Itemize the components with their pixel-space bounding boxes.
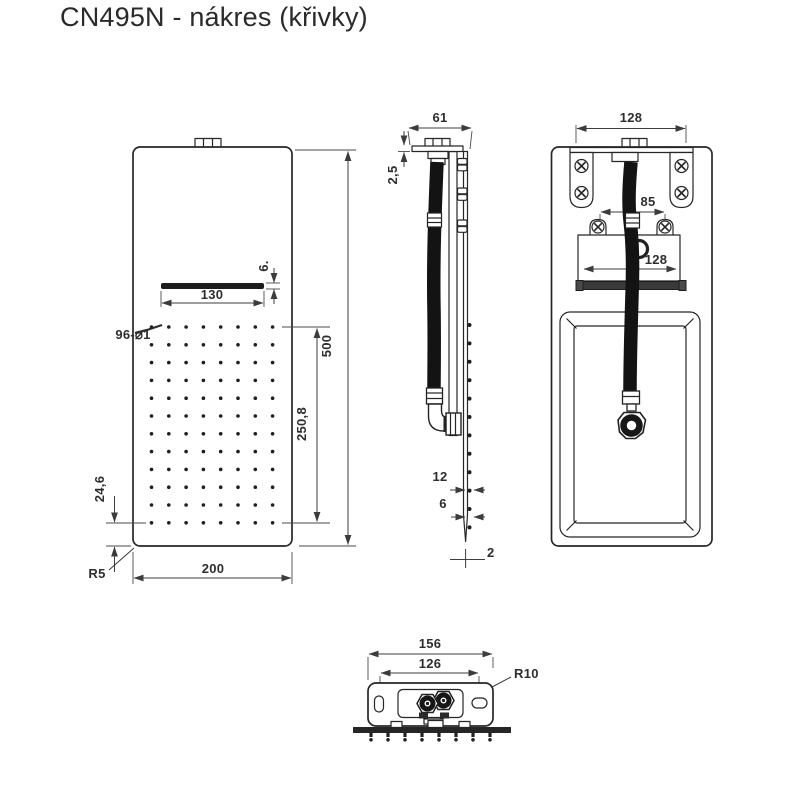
bottom-tab	[459, 722, 470, 728]
side-top-bolt	[425, 139, 450, 147]
side-screws	[458, 159, 468, 233]
bottom-view: 156 126 R10	[353, 636, 539, 742]
dim-side-width: 61	[432, 110, 447, 125]
bottom-tab	[428, 721, 443, 728]
dim-front-width: 200	[202, 561, 225, 576]
dim-front-height: 500	[319, 335, 334, 358]
side-top-plate	[412, 146, 463, 152]
dim-front-corner-radius: R5	[88, 566, 105, 581]
drawing-canvas: 6. 130 96-⌀1 24,6 R5 200	[0, 0, 800, 800]
dim-back-tab-span: 85	[640, 194, 655, 209]
bottom-tab	[391, 722, 402, 728]
dim-front-bottom-offset: 24,6	[92, 476, 107, 503]
dim-side-plate-thickness: 2,5	[385, 166, 400, 185]
back-hose	[629, 162, 633, 391]
side-hose-fitting	[427, 388, 443, 404]
side-view: 61 2,5	[385, 110, 495, 568]
dim-back-box-width: 128	[645, 252, 668, 267]
dim-bottom-corner-radius: R10	[514, 666, 539, 681]
back-eye-ring	[624, 418, 640, 434]
side-bracket	[449, 152, 457, 436]
front-panel-outline	[133, 147, 292, 546]
back-hose-connector	[626, 213, 640, 228]
side-elbow-nut	[446, 413, 461, 435]
bottom-right-slot	[472, 698, 487, 708]
dim-side-nozzle-pitch: 12	[432, 469, 447, 484]
back-top-plate	[570, 148, 693, 153]
dim-bottom-slot-span: 126	[419, 656, 442, 671]
dim-back-top-span: 128	[620, 110, 643, 125]
front-top-connector	[195, 139, 221, 148]
side-panel-profile	[464, 152, 468, 542]
side-inlet-fitting	[428, 152, 448, 159]
dim-bottom-width: 156	[419, 636, 442, 651]
dim-side-nozzle-inset: 6	[439, 496, 447, 511]
bottom-left-slot	[375, 696, 384, 712]
dim-front-holes-label: 96-⌀1	[115, 327, 150, 342]
side-hose	[434, 162, 437, 389]
front-view: 6. 130 96-⌀1 24,6 R5 200	[88, 139, 356, 585]
technical-drawing-page: CN495N - nákres (křivky) 6.	[0, 0, 800, 800]
back-view: 128 85 128	[552, 110, 713, 546]
dim-front-slot-width: 130	[201, 287, 224, 302]
bottom-nozzle-teeth	[369, 733, 492, 742]
side-elbow	[429, 404, 447, 431]
dim-front-dots-span: 250,8	[294, 407, 309, 441]
bottom-flange	[353, 727, 511, 733]
side-hose-connector	[428, 213, 442, 227]
back-inlet-fitting	[612, 153, 638, 162]
dim-side-panel-thickness: 2	[487, 545, 495, 560]
dim-front-slot-height: 6.	[256, 260, 271, 271]
back-hose-end-fitting	[623, 391, 640, 404]
back-top-bolt	[622, 139, 647, 148]
